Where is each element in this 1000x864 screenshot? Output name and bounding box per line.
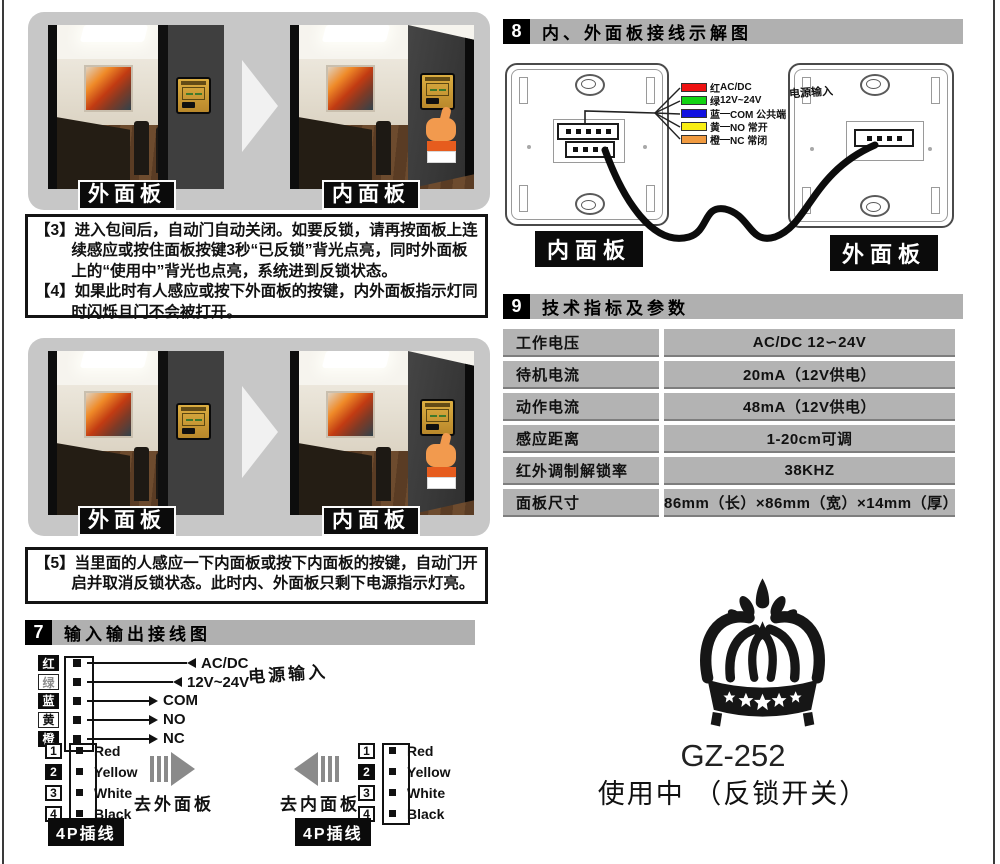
plug-row: 1 Red [358,740,488,761]
section-9-title: 技术指标及参数 [530,294,963,319]
photo-block-1: 外面板 内面板 [28,12,490,210]
instruction-3: 【3】进入包间后，自动门自动关闭。如要反锁，请再按面板上连续感应或按住面板按键3… [35,221,478,282]
sleeve-cuff-orange [427,141,456,151]
plug-4p-badge-left: 4P插线 [48,818,124,846]
pin-number: 1 [358,743,375,759]
io-wiring-diagram: 红 AC/DC 绿 12V~24V 蓝 COM 黄 NO [38,654,478,754]
chair [134,121,149,175]
wire-row: 黄 NO [38,710,478,729]
photo-inner-panel [290,25,474,189]
keypad-display [426,409,449,422]
wall-painting [326,65,375,112]
keypad-display [182,413,205,426]
door-frame-strip [48,351,57,515]
door-frame-strip [290,351,299,515]
keypad-slot [426,424,439,430]
wire-line [87,700,149,702]
instruction-5: 【5】当里面的人感应一下内面板或按下内面板的按键，自动门开启并取消反锁状态。此时… [35,554,478,595]
right-arrow-icon [242,60,278,152]
keypad-display [182,87,205,100]
arrow-right-icon [149,696,158,706]
arrow-left-icon [187,658,196,668]
plug-connector [382,743,410,825]
red-swatch [681,83,707,92]
power-input-label: 电源输入 [788,82,833,101]
section-8-header: 8 内、外面板接线示解图 [503,19,963,44]
spec-param: 待机电流 [503,361,659,389]
ceiling-light [322,351,390,368]
pin-number: 3 [358,785,375,801]
wall-painting [84,65,133,112]
legend-desc: 12V~24V [720,95,761,106]
pressing-hand [426,433,456,489]
orange-swatch [681,135,707,144]
wire-color-label: 绿 [38,674,59,690]
pin-number: 3 [45,785,62,801]
instruction-3-tag: 【3】 [35,222,75,239]
closed-door [158,25,224,189]
instruction-4: 【4】如果此时有人感应或按下外面板的按键，内外面板指示灯同时闪烁且门不会被打开。 [35,282,478,323]
keypad-title-strip [181,407,206,411]
keypad-title-strip [181,81,206,85]
model-number: GZ-252 [503,738,963,774]
wire-desc: NO [163,711,186,728]
plug-row: 3 White [358,782,488,803]
section-7-number: 7 [25,620,52,645]
instruction-4-text: 如果此时有人感应或按下外面板的按键，内外面板指示灯同时闪烁且门不会被打开。 [71,283,477,320]
wire-color-legend: 红 AC/DC 绿 12V~24V 蓝 — COM 公共端 黄 — NO 常开 [681,81,786,146]
door-panel-keypad [420,73,455,110]
spec-table: 工作电压 AC/DC 12∽24V 待机电流 20mA（12V供电） 动作电流 … [503,329,955,517]
crown-logo [690,576,835,734]
spec-param: 动作电流 [503,393,659,421]
spec-value: 48mA（12V供电） [664,393,955,421]
legend-row: 黄 — NO 常开 [681,120,786,132]
arrow-to-outer-panel-icon [150,752,195,786]
wire-name: Red [94,743,120,759]
section-8-title: 内、外面板接线示解图 [530,19,963,44]
pressing-hand [426,107,456,163]
sleeve-cuff-white [427,477,456,489]
wire-line [87,719,149,721]
wire-line [87,681,173,683]
chair [376,121,391,175]
wire-desc: AC/DC [201,655,249,672]
spec-value: 38KHZ [664,457,955,485]
wire-name: Red [407,743,433,759]
sleeve-cuff-orange [427,467,456,477]
product-subtitle: 使用中 （反锁开关） [503,772,963,811]
photo-inner-panel [290,351,474,515]
ceiling-light [80,25,148,42]
manual-page: 外面板 内面板 【3】进入包间后，自动门自动关闭。如要反锁，请再按面板上连续感应… [0,0,1000,864]
wire-color-label: 红 [38,655,59,671]
to-inner-panel-label: 去内面板 [280,790,360,815]
wire-desc: 12V~24V [187,674,249,691]
ceiling-light [322,25,390,42]
to-outer-panel-label: 去外面板 [134,790,214,815]
legend-sep: — [720,134,730,145]
right-arrow-icon [242,386,278,478]
section-9-number: 9 [503,294,530,319]
closed-door [158,351,224,515]
legend-sep: — [720,108,730,119]
section-7-title: 输入输出接线图 [52,620,475,645]
keypad-key-icon [182,102,195,108]
wire-color-label: 黄 [38,712,59,728]
instruction-5-text: 当里面的人感应一下内面板或按下内面板的按键，自动门开启并取消反锁状态。此时内、外… [71,555,477,592]
terminal-connector [64,656,94,752]
photo-outer-panel [48,351,224,515]
plug-row: 4 Black [358,803,488,824]
wire-desc: COM [163,692,198,709]
green-swatch [681,96,707,105]
keypad-slot [426,98,439,104]
chair [376,447,391,501]
section-7-header: 7 输入输出接线图 [25,620,475,645]
pin-number: 2 [358,764,375,780]
inner-panel-label: 内面板 [322,180,420,210]
door-edge [465,351,474,515]
keypad-display [426,83,449,96]
pin-number: 1 [45,743,62,759]
door-panel-keypad [176,77,211,114]
door-edge [465,25,474,189]
door-frame-strip [48,25,57,189]
legend-label: 橙 [710,132,720,147]
panel-wiring-diagram: 红 AC/DC 绿 12V~24V 蓝 — COM 公共端 黄 — NO 常开 [503,55,963,289]
wall-painting [326,391,375,438]
blue-swatch [681,109,707,118]
wire-row: 蓝 COM [38,692,478,711]
door-panel-keypad [176,403,211,440]
arrow-left-icon [173,677,182,687]
legend-row: 蓝 — COM 公共端 [681,107,786,119]
keypad-title-strip [425,77,450,81]
legend-row: 红 AC/DC [681,81,786,93]
spec-value: 86mm（长）×86mm（宽）×14mm（厚） [664,489,955,517]
instruction-4-tag: 【4】 [35,283,75,300]
spec-value: AC/DC 12∽24V [664,329,955,357]
wall-painting [84,391,133,438]
plug-4p-badge-right: 4P插线 [295,818,371,846]
section-8-number: 8 [503,19,530,44]
spec-param: 感应距离 [503,425,659,453]
door-panel-keypad [420,399,455,436]
instruction-5-tag: 【5】 [35,555,75,572]
page-right-rule [993,0,995,864]
sleeve-cuff-white [427,151,456,163]
plug-4p-right: 1 Red 2 Yellow 3 White 4 Black [358,740,488,826]
legend-row: 橙 — NC 常闭 [681,133,786,145]
plug-connector [69,743,97,825]
section-9-header: 9 技术指标及参数 [503,294,963,319]
photo-block-2: 外面板 内面板 [28,338,490,536]
inner-panel-label: 内面板 [322,506,420,536]
wire-color-label: 蓝 [38,693,59,709]
wire-name: Yellow [94,764,138,780]
keypad-key-icon [182,428,195,434]
legend-desc: AC/DC [720,82,752,93]
legend-row: 绿 12V~24V [681,94,786,106]
plug-row: 2 Yellow [358,761,488,782]
spec-param: 红外调制解锁率 [503,457,659,485]
keypad-title-strip [425,403,450,407]
door-frame-strip [290,25,299,189]
instruction-box-5: 【5】当里面的人感应一下内面板或按下内面板的按键，自动门开启并取消反锁状态。此时… [25,547,488,604]
legend-sep: — [720,121,730,132]
spec-value: 1-20cm可调 [664,425,955,453]
spec-value: 20mA（12V供电） [664,361,955,389]
instruction-box-3-4: 【3】进入包间后，自动门自动关闭。如要反锁，请再按面板上连续感应或按住面板按键3… [25,214,488,318]
legend-desc: NC 常闭 [730,132,767,147]
chair [134,447,149,501]
pin-number: 2 [45,764,62,780]
arrow-to-inner-panel-icon [294,752,339,786]
wire-line [87,662,187,664]
wire-name: White [407,785,445,801]
page-left-rule [2,0,4,864]
wire-name: White [94,785,132,801]
wire-name: Black [407,806,444,822]
instruction-3-text: 进入包间后，自动门自动关闭。如要反锁，请再按面板上连续感应或按住面板按键3秒“已… [71,222,477,280]
arrow-right-icon [149,715,158,725]
yellow-swatch [681,122,707,131]
outer-panel-label: 外面板 [78,180,176,210]
photo-outer-panel [48,25,224,189]
spec-param: 工作电压 [503,329,659,357]
outer-panel-label: 外面板 [78,506,176,536]
wire-name: Yellow [407,764,451,780]
spec-param: 面板尺寸 [503,489,659,517]
ceiling-light [80,351,148,368]
